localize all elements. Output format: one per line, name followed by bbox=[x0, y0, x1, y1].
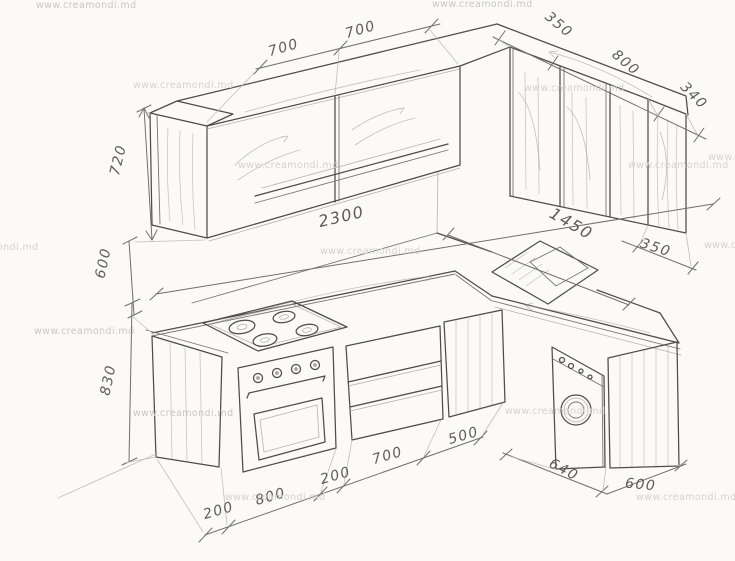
watermark: www.creamondi.md bbox=[432, 0, 533, 10]
watermark: www.creamondi.md bbox=[133, 80, 234, 91]
watermark: www.creamondi.md bbox=[225, 492, 326, 503]
drawer-unit bbox=[346, 326, 443, 440]
washer-button bbox=[569, 364, 574, 369]
burner bbox=[252, 332, 278, 348]
burner bbox=[228, 318, 256, 335]
watermark: www.creamondi.md bbox=[320, 246, 421, 257]
watermark: www.creamondi.md bbox=[524, 83, 625, 94]
watermark: www.creamondi.md bbox=[36, 0, 137, 11]
oven-knob bbox=[273, 369, 282, 378]
watermark: www.creamondi.md bbox=[505, 406, 606, 417]
watermark: www.creamondi.md bbox=[238, 160, 339, 171]
upper-cabinets-right-run bbox=[497, 24, 688, 233]
oven-knob bbox=[292, 365, 301, 374]
wall-corner-line bbox=[437, 172, 438, 233]
burner bbox=[272, 310, 296, 325]
watermark: www.creamondi.md bbox=[708, 152, 735, 163]
cooktop bbox=[203, 301, 347, 351]
right-corner-cabinet bbox=[608, 342, 679, 468]
oven-front bbox=[238, 347, 336, 472]
watermark: www.creamondi.md bbox=[636, 492, 735, 503]
watermark: www.creamondi.md bbox=[0, 242, 39, 253]
washer-button bbox=[560, 358, 565, 363]
kitchen-sketch-canvas: 700 700 350 800 340 720 600 830 2300 145… bbox=[0, 0, 735, 561]
watermark: www.creamondi.md bbox=[34, 326, 135, 337]
oven-knob bbox=[254, 374, 263, 383]
oven-window bbox=[254, 398, 325, 460]
washer-button bbox=[588, 375, 592, 379]
oven-knob bbox=[311, 361, 320, 370]
washer-button bbox=[579, 369, 583, 373]
corner-base-cabinet bbox=[444, 310, 505, 417]
base-cabinets-right-run bbox=[58, 342, 679, 498]
watermark: www.creamondi.md bbox=[704, 240, 735, 251]
watermark: www.creamondi.md bbox=[133, 408, 234, 419]
